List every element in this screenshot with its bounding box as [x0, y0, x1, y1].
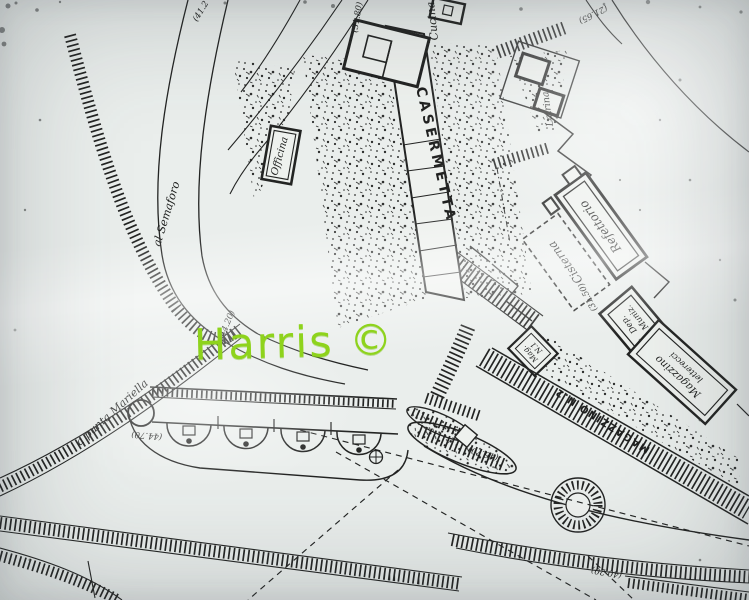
elevation-nw: (41.2 — [190, 0, 211, 24]
elevation-cisterna-area: (31.50) — [576, 281, 600, 314]
scanned-map-photo: CASERMETTA Cucina Latrina Officina Refet… — [0, 0, 749, 600]
label-road-semaforo: al Semaforo — [150, 179, 182, 247]
small-structure — [543, 197, 559, 214]
plan-drawing: CASERMETTA Cucina Latrina Officina Refet… — [0, 0, 749, 600]
circled-cross-marker — [370, 451, 383, 464]
stipple-earthworks — [233, 42, 740, 488]
elevation-battery-left: (44.70) — [131, 429, 163, 443]
elevation-ne: (21.65) — [577, 2, 610, 26]
ramp-ovals — [403, 400, 522, 483]
battery-structure — [128, 387, 521, 484]
